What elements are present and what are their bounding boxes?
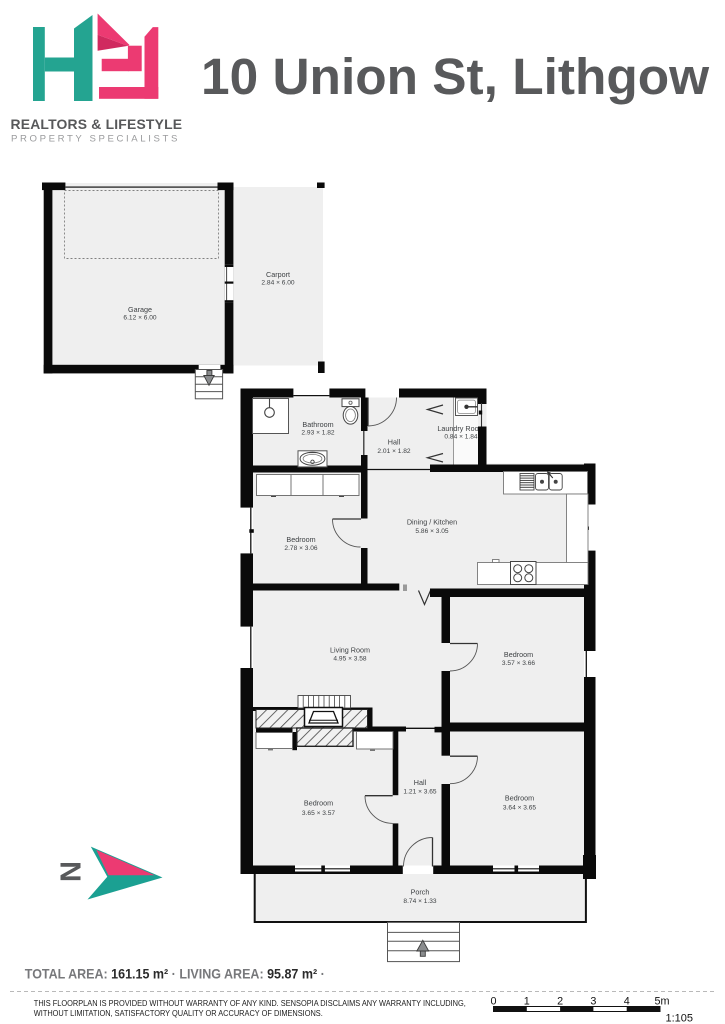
svg-text:Bedroom: Bedroom xyxy=(504,650,533,659)
svg-text:WITHOUT LIMITATION, SATISFACTO: WITHOUT LIMITATION, SATISFACTORY QUALITY… xyxy=(34,1008,323,1018)
svg-text:N: N xyxy=(56,861,88,882)
svg-text:Hall: Hall xyxy=(414,778,427,787)
svg-text:2: 2 xyxy=(557,996,563,1008)
svg-text:6.12 × 6.00: 6.12 × 6.00 xyxy=(123,314,157,321)
svg-text:PROPERTY SPECIALISTS: PROPERTY SPECIALISTS xyxy=(11,134,180,145)
svg-text:5m: 5m xyxy=(655,996,670,1008)
svg-text:1.21 × 3.65: 1.21 × 3.65 xyxy=(403,789,437,796)
svg-text:3.64 × 3.65: 3.64 × 3.65 xyxy=(503,805,537,812)
svg-text:2.78 × 3.06: 2.78 × 3.06 xyxy=(284,545,318,552)
svg-text:0.84 × 1.84: 0.84 × 1.84 xyxy=(444,433,478,440)
svg-text:0: 0 xyxy=(490,996,496,1008)
svg-text:Hall: Hall xyxy=(388,438,401,447)
svg-text:1:105: 1:105 xyxy=(665,1013,693,1024)
svg-text:Bedroom: Bedroom xyxy=(304,799,333,808)
svg-text:Porch: Porch xyxy=(411,888,430,897)
svg-text:4.95 × 3.58: 4.95 × 3.58 xyxy=(333,655,367,662)
svg-text:Dining / Kitchen: Dining / Kitchen xyxy=(407,518,457,527)
svg-text:Bedroom: Bedroom xyxy=(505,794,534,803)
svg-text:3: 3 xyxy=(590,996,596,1008)
svg-text:2.84 × 6.00: 2.84 × 6.00 xyxy=(261,279,295,286)
svg-text:Garage: Garage xyxy=(128,305,152,314)
svg-text:2.93 × 1.82: 2.93 × 1.82 xyxy=(301,430,335,437)
svg-text:REALTORS & LIFESTYLE: REALTORS & LIFESTYLE xyxy=(11,116,183,132)
svg-text:Carport: Carport xyxy=(266,270,290,279)
svg-text:1: 1 xyxy=(524,996,530,1008)
svg-text:Living Room: Living Room xyxy=(330,646,370,655)
svg-text:10 Union St, Lithgow: 10 Union St, Lithgow xyxy=(201,47,710,105)
svg-text:THIS FLOORPLAN IS PROVIDED WIT: THIS FLOORPLAN IS PROVIDED WITHOUT WARRA… xyxy=(34,998,466,1008)
svg-text:Bathroom: Bathroom xyxy=(302,420,333,429)
svg-text:2.01 × 1.82: 2.01 × 1.82 xyxy=(377,448,411,455)
svg-text:8.74 × 1.33: 8.74 × 1.33 xyxy=(403,898,437,905)
svg-text:TOTAL AREA: 161.15 m² · LIVING: TOTAL AREA: 161.15 m² · LIVING AREA: 95.… xyxy=(25,967,325,982)
svg-text:3.57 × 3.66: 3.57 × 3.66 xyxy=(502,660,536,667)
svg-text:5.86 × 3.05: 5.86 × 3.05 xyxy=(415,528,449,535)
svg-text:4: 4 xyxy=(624,996,630,1008)
svg-text:Bedroom: Bedroom xyxy=(286,535,315,544)
svg-text:3.65 × 3.57: 3.65 × 3.57 xyxy=(302,810,336,817)
svg-text:Laundry Room: Laundry Room xyxy=(437,424,484,433)
